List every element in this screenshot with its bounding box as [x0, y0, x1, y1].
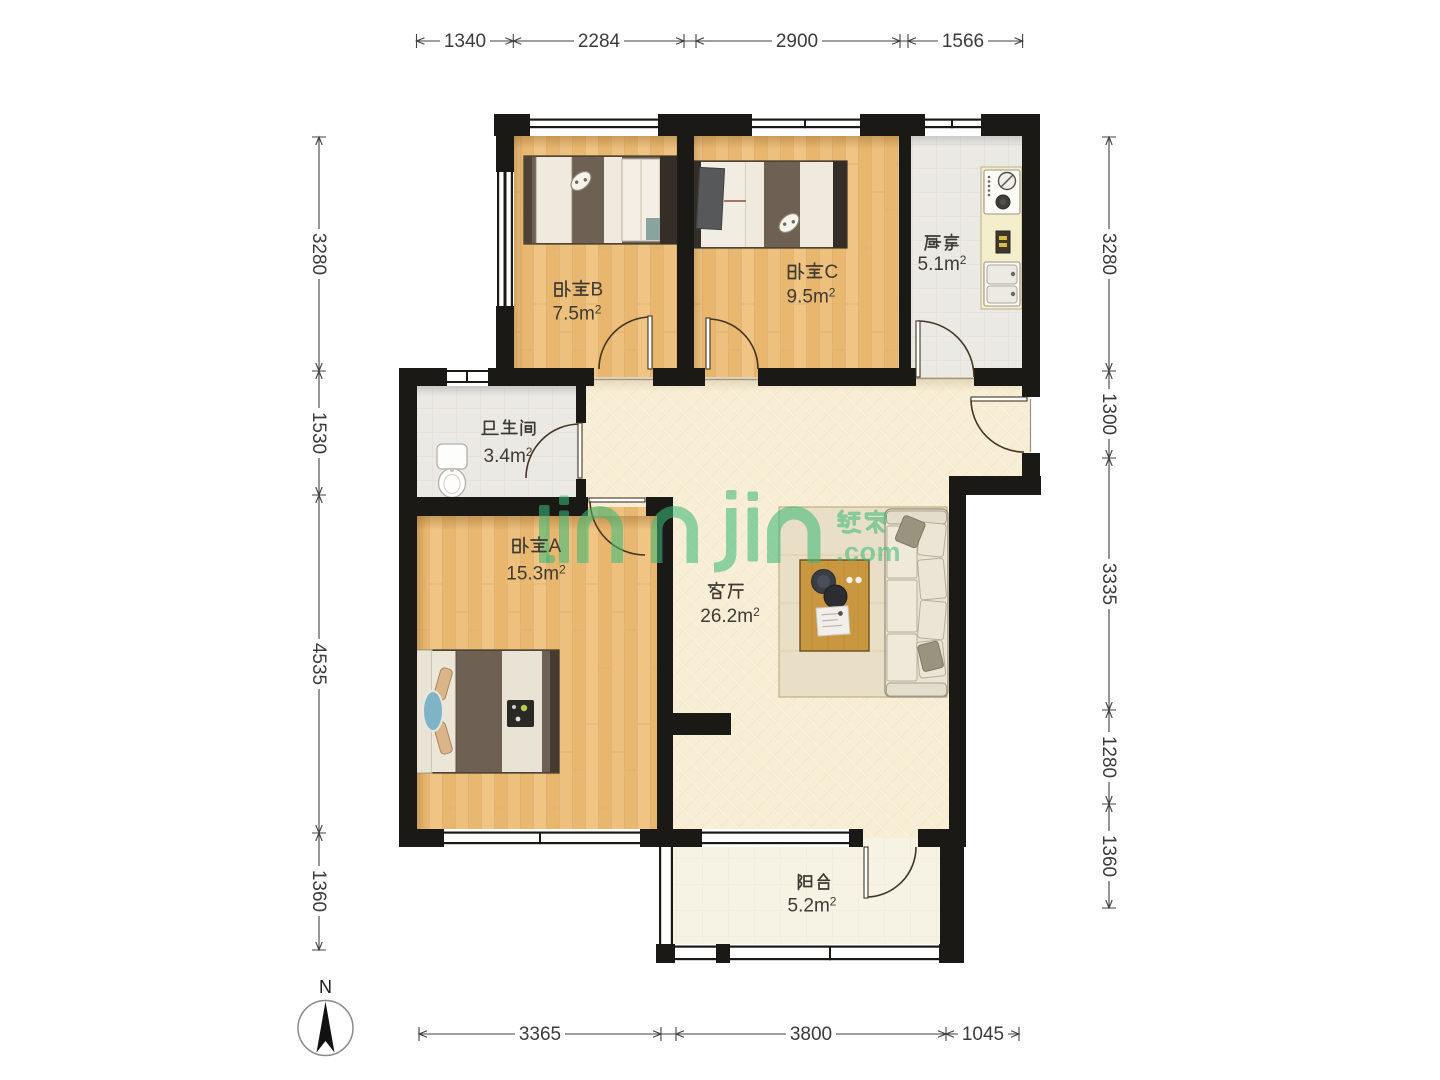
svg-text:C: C [825, 262, 839, 283]
svg-text:N: N [319, 977, 332, 997]
svg-text:3280: 3280 [308, 233, 329, 275]
svg-text:15.3m2: 15.3m2 [506, 563, 566, 585]
svg-text:9.5m2: 9.5m2 [787, 286, 836, 308]
svg-text:1360: 1360 [308, 870, 329, 912]
svg-text:3335: 3335 [1098, 563, 1119, 605]
svg-text:B: B [591, 280, 604, 301]
svg-text:3365: 3365 [519, 1024, 561, 1045]
svg-text:4535: 4535 [308, 643, 329, 685]
svg-text:1360: 1360 [1098, 835, 1119, 877]
svg-text:5.2m2: 5.2m2 [788, 895, 837, 917]
svg-text:3280: 3280 [1098, 233, 1119, 275]
svg-text:1300: 1300 [1098, 393, 1119, 435]
svg-text:3800: 3800 [790, 1024, 832, 1045]
svg-text:1340: 1340 [444, 31, 486, 52]
svg-text:2284: 2284 [578, 31, 621, 52]
svg-text:3.4m2: 3.4m2 [484, 445, 533, 467]
svg-text:26.2m2: 26.2m2 [700, 605, 760, 627]
svg-text:2900: 2900 [776, 31, 818, 52]
svg-text:7.5m2: 7.5m2 [553, 303, 602, 325]
svg-text:1530: 1530 [308, 412, 329, 454]
svg-text:A: A [549, 536, 562, 557]
svg-text:1280: 1280 [1098, 736, 1119, 778]
svg-text:.com: .com [836, 537, 901, 567]
svg-text:1566: 1566 [942, 31, 984, 52]
svg-text:5.1m2: 5.1m2 [918, 253, 967, 275]
svg-text:1045: 1045 [962, 1024, 1004, 1045]
